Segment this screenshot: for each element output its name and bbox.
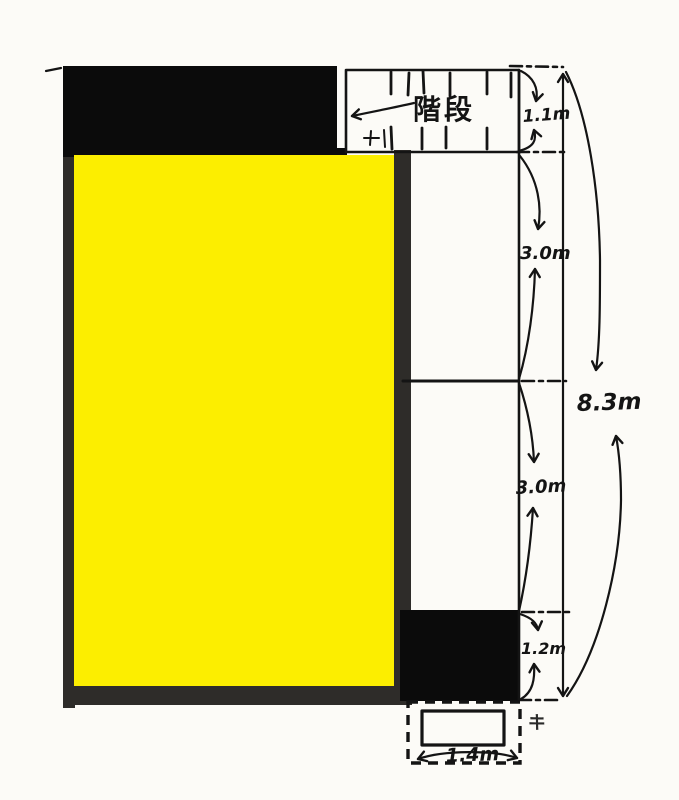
dim-arrow-4-up bbox=[521, 664, 534, 699]
left-wall bbox=[63, 67, 75, 708]
floor-plan-sketch: 階段 1.1m 3.0m 3.0m 1.2m 8.3m 1.4m キ bbox=[0, 0, 679, 800]
upper-black-block bbox=[63, 66, 337, 157]
dim-arrow-4-down bbox=[520, 614, 538, 630]
dim-arrow-2-down bbox=[520, 156, 540, 229]
yellow-room bbox=[74, 155, 394, 692]
dimension-label-4: 1.2m bbox=[521, 639, 566, 658]
dim-arrow-2-up bbox=[519, 269, 535, 379]
dim-arrow-3-down bbox=[519, 383, 534, 462]
total-dimension-arc-top bbox=[566, 72, 600, 370]
dim-arrow-1-down bbox=[521, 71, 537, 101]
stair-plus-mark bbox=[364, 130, 385, 147]
sketch-page: 階段 1.1m 3.0m 3.0m 1.2m 8.3m 1.4m キ bbox=[0, 0, 679, 800]
total-dimension-arc-bottom bbox=[567, 436, 621, 696]
dim-arrow-3-up bbox=[519, 508, 533, 611]
bottom-door-rect bbox=[422, 711, 504, 745]
width-label: 1.4m bbox=[445, 743, 499, 767]
stairs-label: 階段 bbox=[413, 93, 475, 126]
left-arrow-icon bbox=[352, 103, 414, 116]
corner-mark: キ bbox=[526, 711, 547, 735]
lower-black-block bbox=[400, 610, 519, 701]
segment-dimension-arrows bbox=[519, 71, 540, 699]
dimension-label-3: 3.0m bbox=[515, 475, 567, 499]
bottom-wall bbox=[63, 686, 412, 705]
total-height-label: 8.3m bbox=[576, 389, 642, 417]
corner-tick bbox=[46, 68, 61, 71]
dim-arrow-1-up bbox=[519, 130, 535, 151]
